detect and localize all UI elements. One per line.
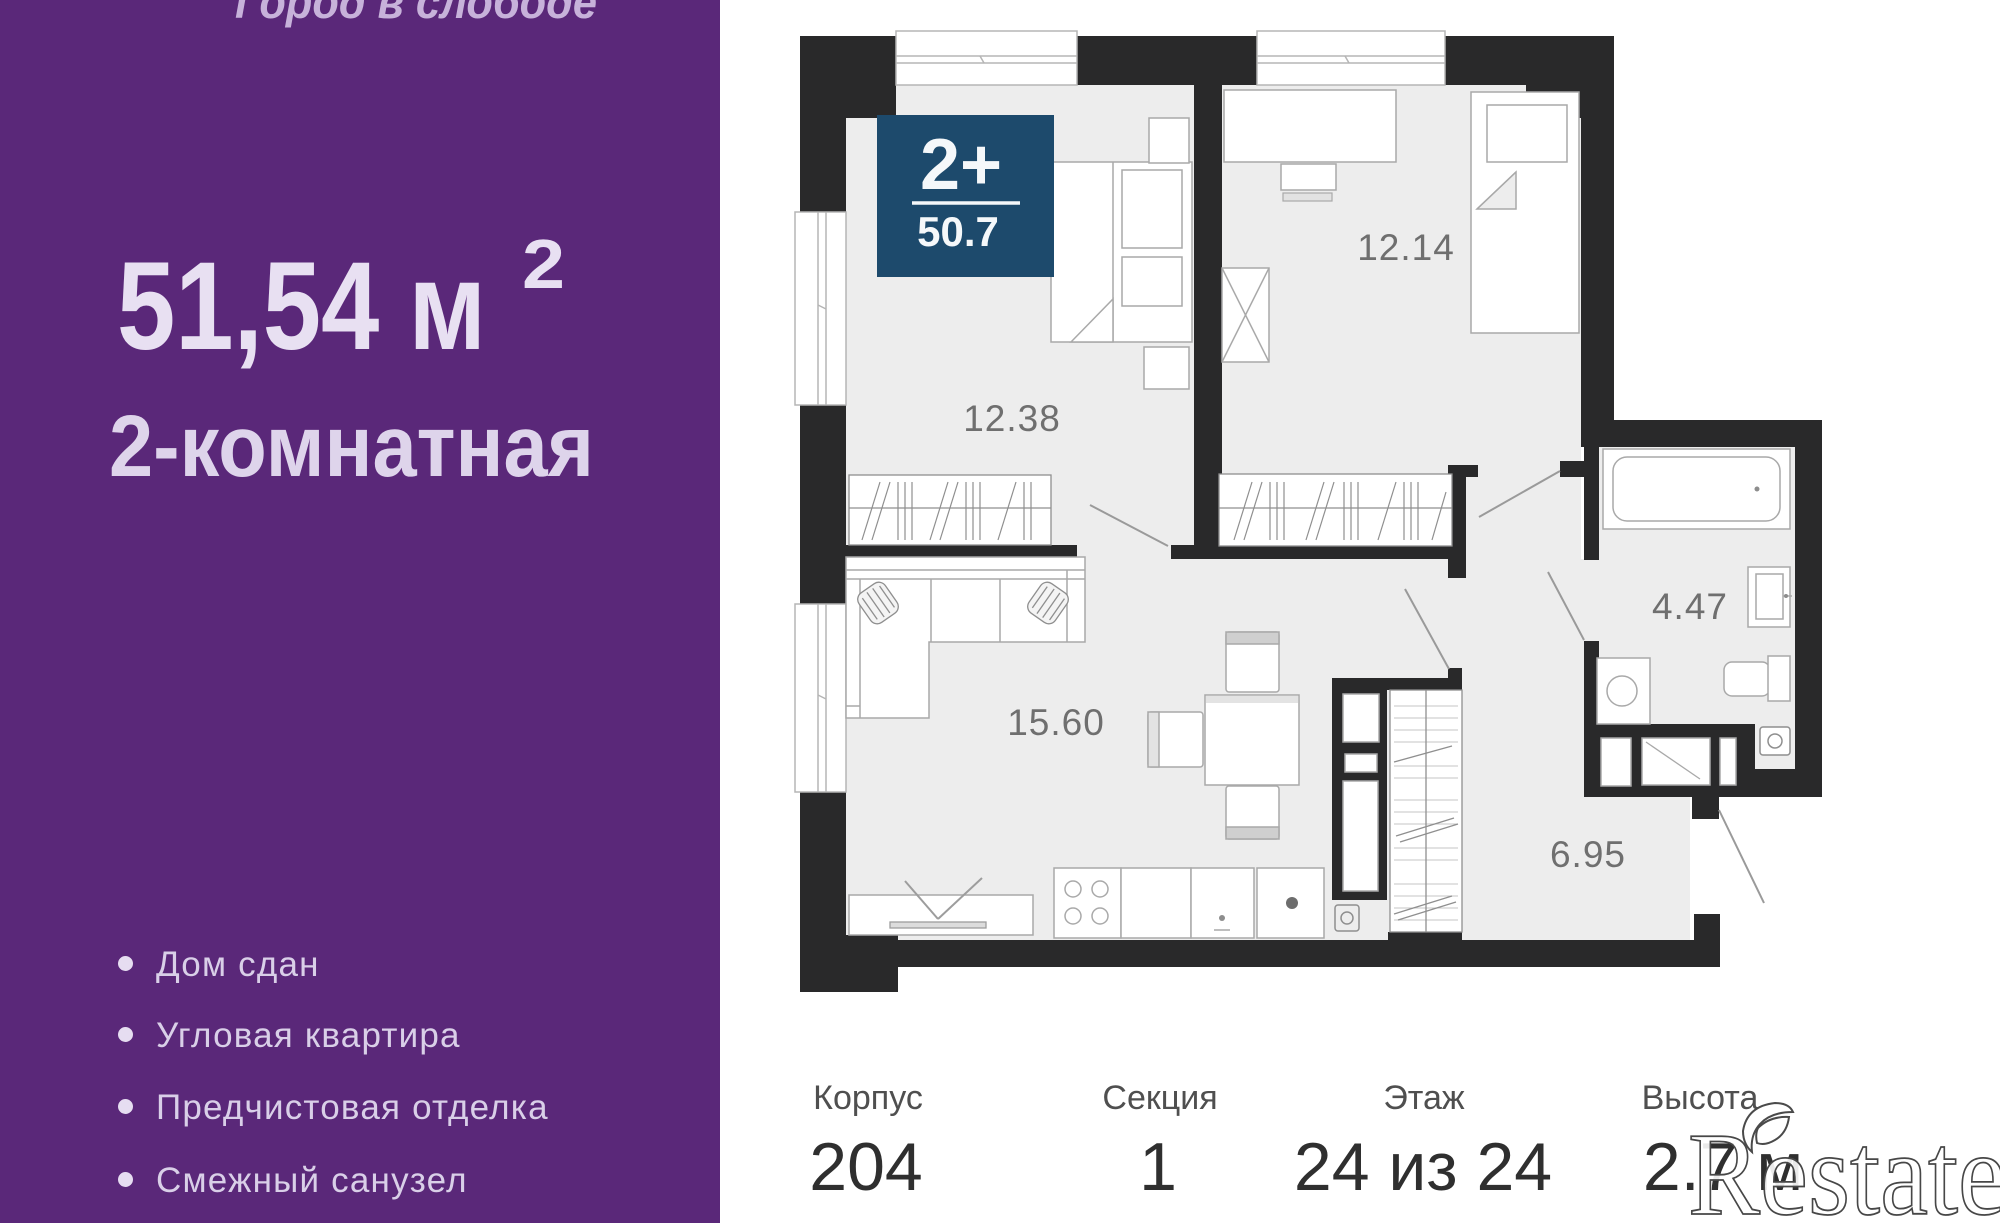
svg-text:12.38: 12.38 [963,398,1061,439]
svg-text:6.95: 6.95 [1550,834,1626,875]
svg-text:15.60: 15.60 [1007,702,1105,743]
svg-text:2+: 2+ [920,125,1002,205]
svg-text:2: 2 [522,225,565,303]
svg-text:Restate: Restate [1688,1108,2000,1223]
svg-text:12.14: 12.14 [1357,227,1455,268]
svg-text:Город в слободе: Город в слободе [235,0,597,28]
svg-text:51,54 м: 51,54 м [117,237,486,376]
svg-text:50.7: 50.7 [917,208,999,255]
svg-text:4.47: 4.47 [1652,586,1728,627]
svg-text:2-комнатная: 2-комнатная [109,398,594,495]
